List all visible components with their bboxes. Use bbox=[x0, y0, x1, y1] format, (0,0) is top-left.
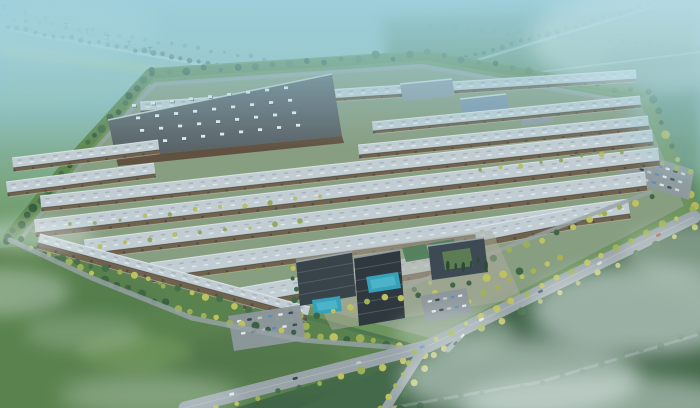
cool-tint bbox=[0, 0, 700, 408]
scene-canvas bbox=[0, 0, 700, 408]
scene-layers bbox=[0, 0, 700, 408]
aerial-factory-rendering bbox=[0, 0, 700, 408]
